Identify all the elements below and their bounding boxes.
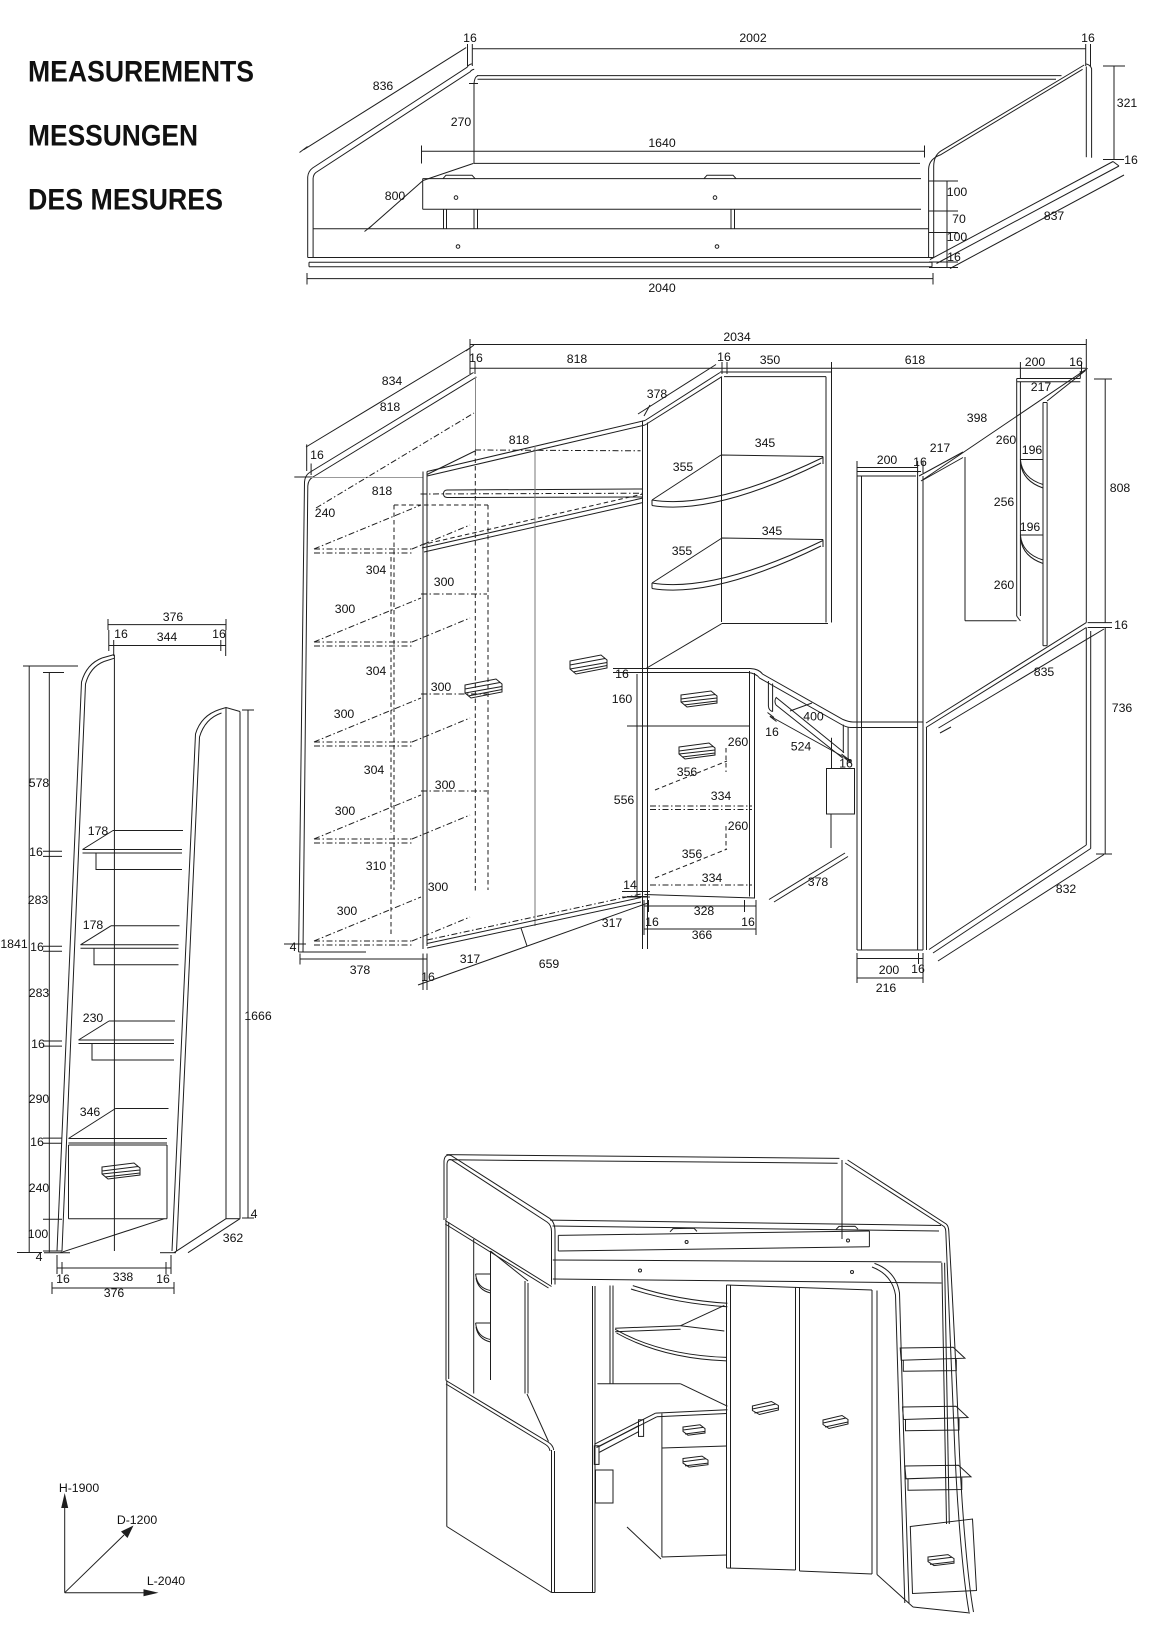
svg-text:200: 200 bbox=[1025, 355, 1046, 369]
svg-text:344: 344 bbox=[157, 630, 178, 644]
svg-text:100: 100 bbox=[28, 1227, 49, 1241]
svg-text:835: 835 bbox=[1034, 665, 1055, 679]
svg-text:618: 618 bbox=[905, 353, 926, 367]
svg-text:818: 818 bbox=[509, 433, 530, 447]
svg-text:16: 16 bbox=[56, 1272, 70, 1286]
svg-text:16: 16 bbox=[30, 1135, 44, 1149]
svg-text:300: 300 bbox=[337, 904, 358, 918]
svg-text:300: 300 bbox=[335, 804, 356, 818]
svg-text:16: 16 bbox=[1081, 31, 1095, 45]
svg-text:659: 659 bbox=[539, 957, 560, 971]
svg-text:240: 240 bbox=[29, 1181, 50, 1195]
svg-text:260: 260 bbox=[996, 433, 1017, 447]
svg-text:366: 366 bbox=[692, 928, 713, 942]
svg-text:16: 16 bbox=[310, 448, 324, 462]
svg-text:1640: 1640 bbox=[648, 136, 676, 150]
svg-text:200: 200 bbox=[877, 453, 898, 467]
svg-text:362: 362 bbox=[223, 1231, 244, 1245]
svg-text:16: 16 bbox=[765, 725, 779, 739]
svg-text:16: 16 bbox=[1069, 355, 1083, 369]
svg-text:4: 4 bbox=[36, 1250, 43, 1264]
svg-text:836: 836 bbox=[373, 79, 394, 93]
svg-text:16: 16 bbox=[29, 845, 43, 859]
svg-text:14: 14 bbox=[623, 878, 637, 892]
svg-text:338: 338 bbox=[113, 1270, 134, 1284]
svg-text:16: 16 bbox=[1114, 618, 1128, 632]
svg-text:4: 4 bbox=[251, 1207, 258, 1221]
svg-text:524: 524 bbox=[791, 740, 812, 754]
svg-text:MEASUREMENTS: MEASUREMENTS bbox=[28, 56, 254, 89]
svg-text:16: 16 bbox=[114, 627, 128, 641]
svg-text:100: 100 bbox=[947, 185, 968, 199]
svg-text:556: 556 bbox=[614, 793, 635, 807]
svg-text:345: 345 bbox=[762, 524, 783, 538]
svg-text:230: 230 bbox=[83, 1011, 104, 1025]
svg-text:334: 334 bbox=[711, 789, 732, 803]
svg-text:310: 310 bbox=[366, 859, 387, 873]
svg-text:304: 304 bbox=[366, 664, 387, 678]
svg-text:300: 300 bbox=[335, 602, 356, 616]
svg-text:4: 4 bbox=[290, 940, 297, 954]
svg-text:260: 260 bbox=[728, 819, 749, 833]
svg-text:300: 300 bbox=[434, 575, 455, 589]
svg-text:16: 16 bbox=[30, 940, 44, 954]
svg-text:300: 300 bbox=[334, 707, 355, 721]
svg-text:355: 355 bbox=[673, 460, 694, 474]
svg-text:834: 834 bbox=[382, 374, 403, 388]
svg-text:260: 260 bbox=[728, 735, 749, 749]
svg-text:328: 328 bbox=[694, 904, 715, 918]
svg-text:345: 345 bbox=[755, 436, 776, 450]
svg-text:196: 196 bbox=[1022, 443, 1043, 457]
svg-text:16: 16 bbox=[463, 31, 477, 45]
svg-text:378: 378 bbox=[808, 875, 829, 889]
svg-text:300: 300 bbox=[428, 880, 449, 894]
svg-text:2040: 2040 bbox=[648, 281, 676, 295]
svg-text:16: 16 bbox=[911, 962, 925, 976]
svg-text:178: 178 bbox=[88, 824, 109, 838]
svg-text:378: 378 bbox=[647, 387, 668, 401]
svg-text:DES MESURES: DES MESURES bbox=[28, 184, 223, 217]
svg-text:808: 808 bbox=[1110, 481, 1131, 495]
svg-text:16: 16 bbox=[717, 350, 731, 364]
svg-text:16: 16 bbox=[212, 627, 226, 641]
svg-text:216: 216 bbox=[876, 981, 897, 995]
svg-text:736: 736 bbox=[1112, 701, 1133, 715]
svg-text:837: 837 bbox=[1044, 209, 1065, 223]
svg-text:356: 356 bbox=[682, 847, 703, 861]
svg-text:16: 16 bbox=[741, 915, 755, 929]
svg-text:283: 283 bbox=[29, 986, 50, 1000]
svg-text:317: 317 bbox=[460, 952, 481, 966]
svg-text:260: 260 bbox=[994, 578, 1015, 592]
svg-text:100: 100 bbox=[947, 230, 968, 244]
svg-text:2002: 2002 bbox=[739, 31, 767, 45]
svg-text:300: 300 bbox=[431, 680, 452, 694]
svg-text:356: 356 bbox=[677, 765, 698, 779]
svg-text:H-1900: H-1900 bbox=[59, 1481, 99, 1495]
svg-text:16: 16 bbox=[1124, 153, 1138, 167]
svg-text:304: 304 bbox=[366, 563, 387, 577]
svg-text:16: 16 bbox=[913, 455, 927, 469]
svg-text:398: 398 bbox=[967, 411, 988, 425]
svg-text:1666: 1666 bbox=[244, 1009, 272, 1023]
svg-text:355: 355 bbox=[672, 544, 693, 558]
svg-text:818: 818 bbox=[372, 484, 393, 498]
svg-text:16: 16 bbox=[947, 250, 961, 264]
svg-text:300: 300 bbox=[435, 778, 456, 792]
svg-text:70: 70 bbox=[952, 212, 966, 226]
svg-text:178: 178 bbox=[83, 918, 104, 932]
svg-text:290: 290 bbox=[29, 1092, 50, 1106]
svg-text:160: 160 bbox=[612, 692, 633, 706]
svg-text:MESSUNGEN: MESSUNGEN bbox=[28, 120, 198, 153]
svg-text:270: 270 bbox=[451, 115, 472, 129]
svg-text:818: 818 bbox=[567, 352, 588, 366]
svg-text:16: 16 bbox=[156, 1272, 170, 1286]
svg-text:16: 16 bbox=[645, 915, 659, 929]
svg-text:196: 196 bbox=[1020, 520, 1041, 534]
svg-text:16: 16 bbox=[31, 1037, 45, 1051]
svg-text:378: 378 bbox=[350, 963, 371, 977]
svg-text:304: 304 bbox=[364, 763, 385, 777]
svg-text:800: 800 bbox=[385, 189, 406, 203]
svg-text:317: 317 bbox=[602, 916, 623, 930]
svg-text:1841: 1841 bbox=[0, 937, 28, 951]
svg-text:832: 832 bbox=[1056, 882, 1077, 896]
svg-text:200: 200 bbox=[879, 963, 900, 977]
svg-text:400: 400 bbox=[803, 710, 824, 724]
svg-text:2034: 2034 bbox=[723, 330, 751, 344]
svg-text:240: 240 bbox=[315, 506, 336, 520]
svg-text:346: 346 bbox=[80, 1105, 101, 1119]
svg-text:376: 376 bbox=[163, 610, 184, 624]
svg-text:D-1200: D-1200 bbox=[117, 1513, 157, 1527]
svg-text:256: 256 bbox=[994, 495, 1015, 509]
svg-text:321: 321 bbox=[1117, 96, 1138, 110]
svg-text:818: 818 bbox=[380, 400, 401, 414]
svg-text:L-2040: L-2040 bbox=[147, 1574, 185, 1588]
svg-text:350: 350 bbox=[760, 353, 781, 367]
svg-text:578: 578 bbox=[29, 776, 50, 790]
svg-text:376: 376 bbox=[104, 1286, 125, 1300]
svg-text:16: 16 bbox=[615, 667, 629, 681]
svg-text:16: 16 bbox=[469, 351, 483, 365]
svg-text:334: 334 bbox=[702, 871, 723, 885]
svg-text:283: 283 bbox=[28, 893, 49, 907]
svg-text:217: 217 bbox=[930, 441, 951, 455]
